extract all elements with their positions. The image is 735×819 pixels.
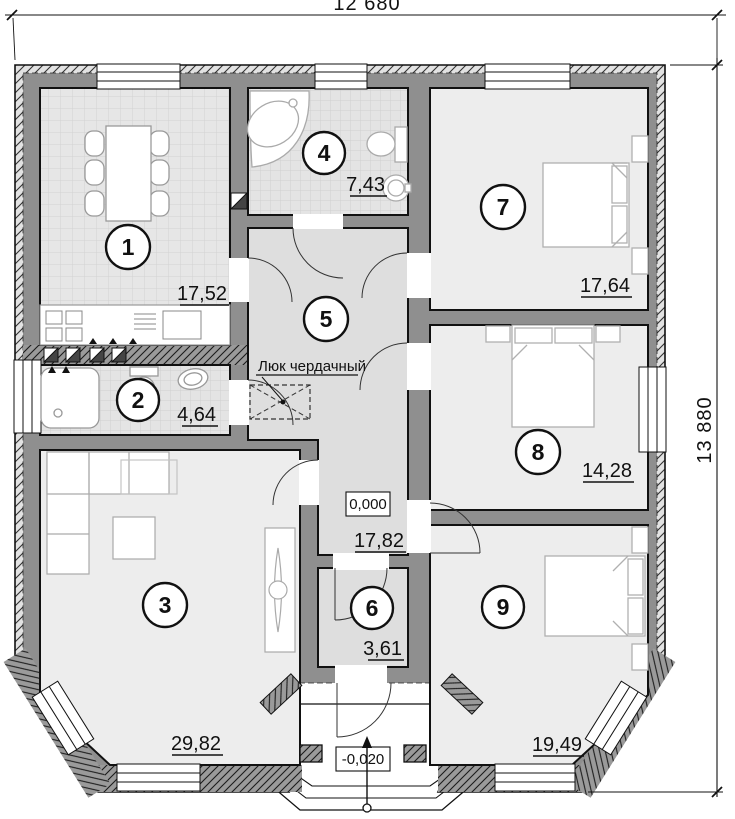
chair-icon: [85, 191, 104, 216]
vent-icon: [44, 348, 58, 362]
svg-text:9: 9: [497, 594, 510, 620]
svg-text:5: 5: [320, 306, 333, 332]
window-room7-top: [485, 64, 570, 89]
dining-table-icon: [106, 126, 151, 221]
room-9-badge: 9: [482, 586, 524, 628]
pillow-icon: [628, 598, 643, 634]
room-6-badge: 6: [351, 587, 393, 629]
area-room-2: 4,64: [177, 404, 216, 426]
attic-hatch-label: Люк чердачный: [258, 358, 366, 375]
svg-text:6: 6: [366, 595, 379, 621]
level-mark-main: 0,000: [346, 492, 390, 516]
vent-icon: [231, 193, 247, 209]
pillow-icon: [555, 328, 592, 343]
svg-text:1: 1: [122, 234, 135, 260]
chair-icon: [150, 160, 169, 185]
window-room3-bottom: [117, 764, 200, 791]
bathtub-icon: [41, 368, 99, 428]
nightstand-icon: [632, 136, 648, 162]
area-room-8: 14,28: [582, 460, 632, 482]
svg-text:7: 7: [497, 194, 510, 220]
window-room2-left: [14, 360, 41, 433]
room-7-badge: 7: [481, 185, 525, 229]
level-main-value: 0,000: [349, 496, 387, 513]
room-5-badge: 5: [304, 297, 348, 341]
area-room-5: 17,82: [354, 530, 404, 552]
chair-icon: [85, 131, 104, 156]
area-room-7: 17,64: [580, 275, 630, 297]
room-8-badge: 8: [516, 430, 560, 474]
window-room8-right: [639, 367, 666, 452]
level-mark-porch: -0,020: [336, 747, 390, 771]
chair-icon: [150, 191, 169, 216]
room-1-badge: 1: [106, 225, 150, 269]
svg-text:8: 8: [532, 439, 545, 465]
nightstand-icon: [596, 326, 620, 342]
vent-icon: [112, 348, 126, 362]
tv-cabinet-icon: [265, 528, 295, 652]
coffee-table-icon: [113, 517, 155, 559]
column-icon: [404, 745, 426, 762]
chair-icon: [150, 131, 169, 156]
floor-plan-page: Люк чердачный 0,000 -0,020 1 2 3: [0, 0, 735, 819]
area-room-1: 17,52: [177, 283, 227, 305]
svg-text:2: 2: [132, 387, 145, 413]
pillow-icon: [612, 166, 627, 203]
room-4-badge: 4: [303, 132, 345, 174]
column-icon: [300, 745, 322, 762]
window-room9-bottom: [495, 764, 575, 791]
svg-text:4: 4: [318, 140, 331, 166]
pillow-icon: [515, 328, 552, 343]
svg-text:3: 3: [159, 592, 172, 618]
dimension-top: 12 680: [5, 0, 726, 62]
area-room-9: 19,49: [532, 734, 582, 756]
area-room-6: 3,61: [363, 638, 402, 660]
drain-icon: [289, 99, 297, 107]
vent-icon: [66, 348, 80, 362]
area-room-4: 7,43: [346, 174, 385, 196]
floor-plan-drawing: Люк чердачный 0,000 -0,020 1 2 3: [0, 0, 735, 819]
level-porch-value: -0,020: [342, 751, 385, 768]
pillow-icon: [612, 206, 627, 243]
dimension-width-value: 12 680: [333, 0, 400, 15]
nightstand-icon: [632, 644, 648, 670]
area-room-3: 29,82: [171, 733, 221, 755]
pillow-icon: [628, 559, 643, 595]
room-3-badge: 3: [143, 583, 187, 627]
vent-icon: [90, 348, 104, 362]
dining-set: [85, 126, 169, 221]
nightstand-icon: [632, 248, 648, 274]
nightstand-icon: [486, 326, 510, 342]
kitchen-counter: [40, 305, 230, 345]
window-room1-top: [97, 64, 180, 89]
room-2-badge: 2: [117, 379, 159, 421]
leader-dot: [281, 400, 286, 405]
nightstand-icon: [632, 527, 648, 553]
window-room4-top: [315, 64, 367, 89]
chair-icon: [85, 160, 104, 185]
dimension-height-value: 13 880: [694, 396, 716, 463]
